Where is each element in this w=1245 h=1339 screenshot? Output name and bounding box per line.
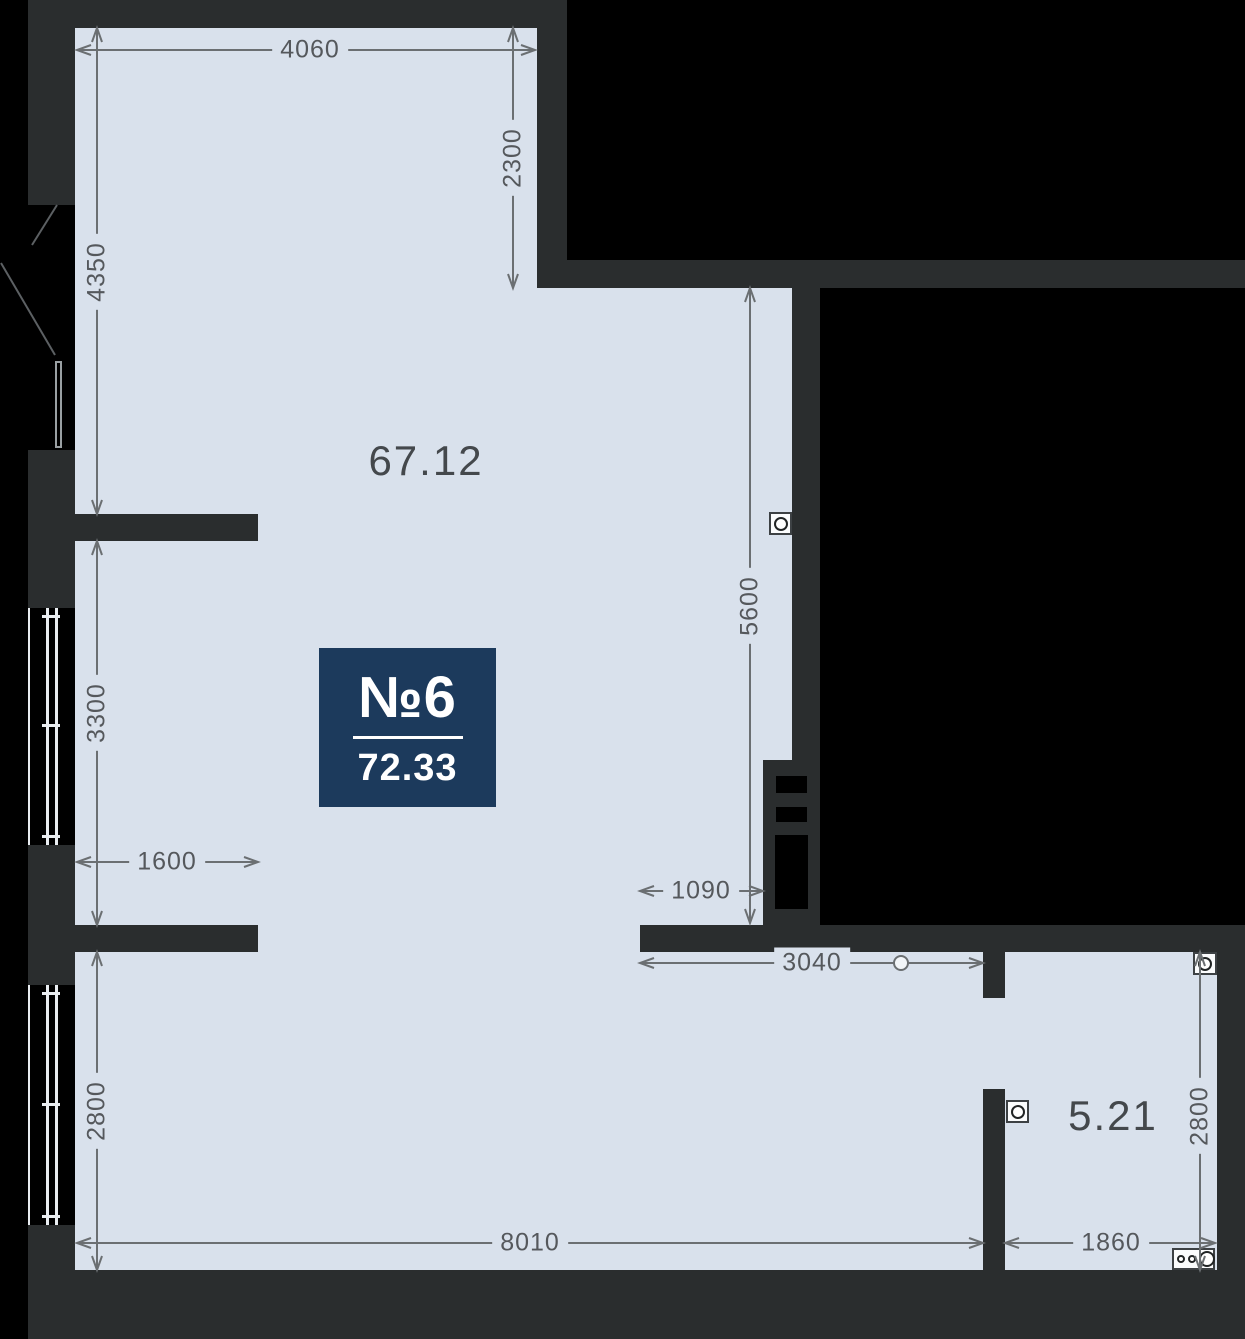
door-leaf-icon [56,362,61,447]
unit-badge: №6 72.33 [319,648,496,807]
dimension-label-8010: 8010 [492,1228,568,1259]
dimension-label-1600: 1600 [129,847,205,878]
unit-total-area: 72.33 [357,749,457,787]
dimension-label-4060: 4060 [272,35,348,66]
badge-divider [353,736,463,739]
dimension-label-4350: 4350 [82,234,113,310]
dimension-label-2800-left: 2800 [82,1073,113,1149]
dimension-label-2800-right: 2800 [1185,1078,1216,1154]
dimension-label-5600: 5600 [735,568,766,644]
dimension-label-3300: 3300 [82,675,113,751]
dimension-label-1860: 1860 [1073,1228,1149,1259]
floor-plan: 4060 2300 4350 3300 1600 2800 8010 5600 … [0,0,1245,1339]
small-room-area-label: 5.21 [1068,1092,1158,1140]
door-swing-lines [1,205,61,447]
dimension-label-3040: 3040 [774,948,850,979]
dimension-label-1090: 1090 [663,876,739,907]
dimension-marker-circle [894,956,908,970]
dimension-label-2300: 2300 [498,120,529,196]
main-room-area-label: 67.12 [368,437,483,485]
unit-number: №6 [358,669,457,727]
plan-annotations-layer [0,0,1245,1339]
